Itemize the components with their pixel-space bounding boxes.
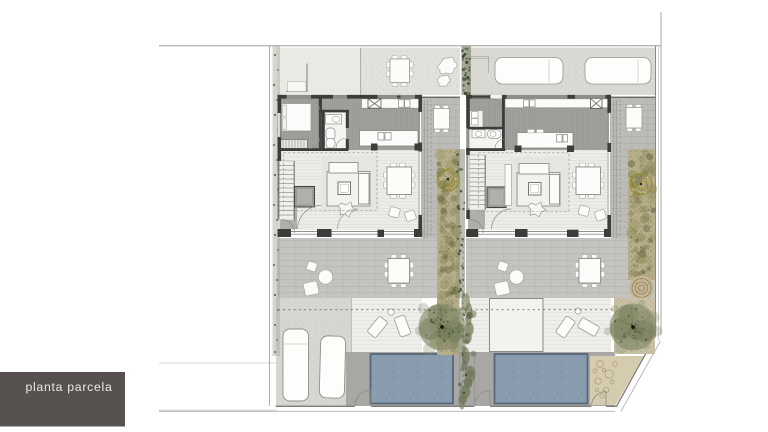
svg-text:planta parcela: planta parcela — [25, 380, 112, 394]
